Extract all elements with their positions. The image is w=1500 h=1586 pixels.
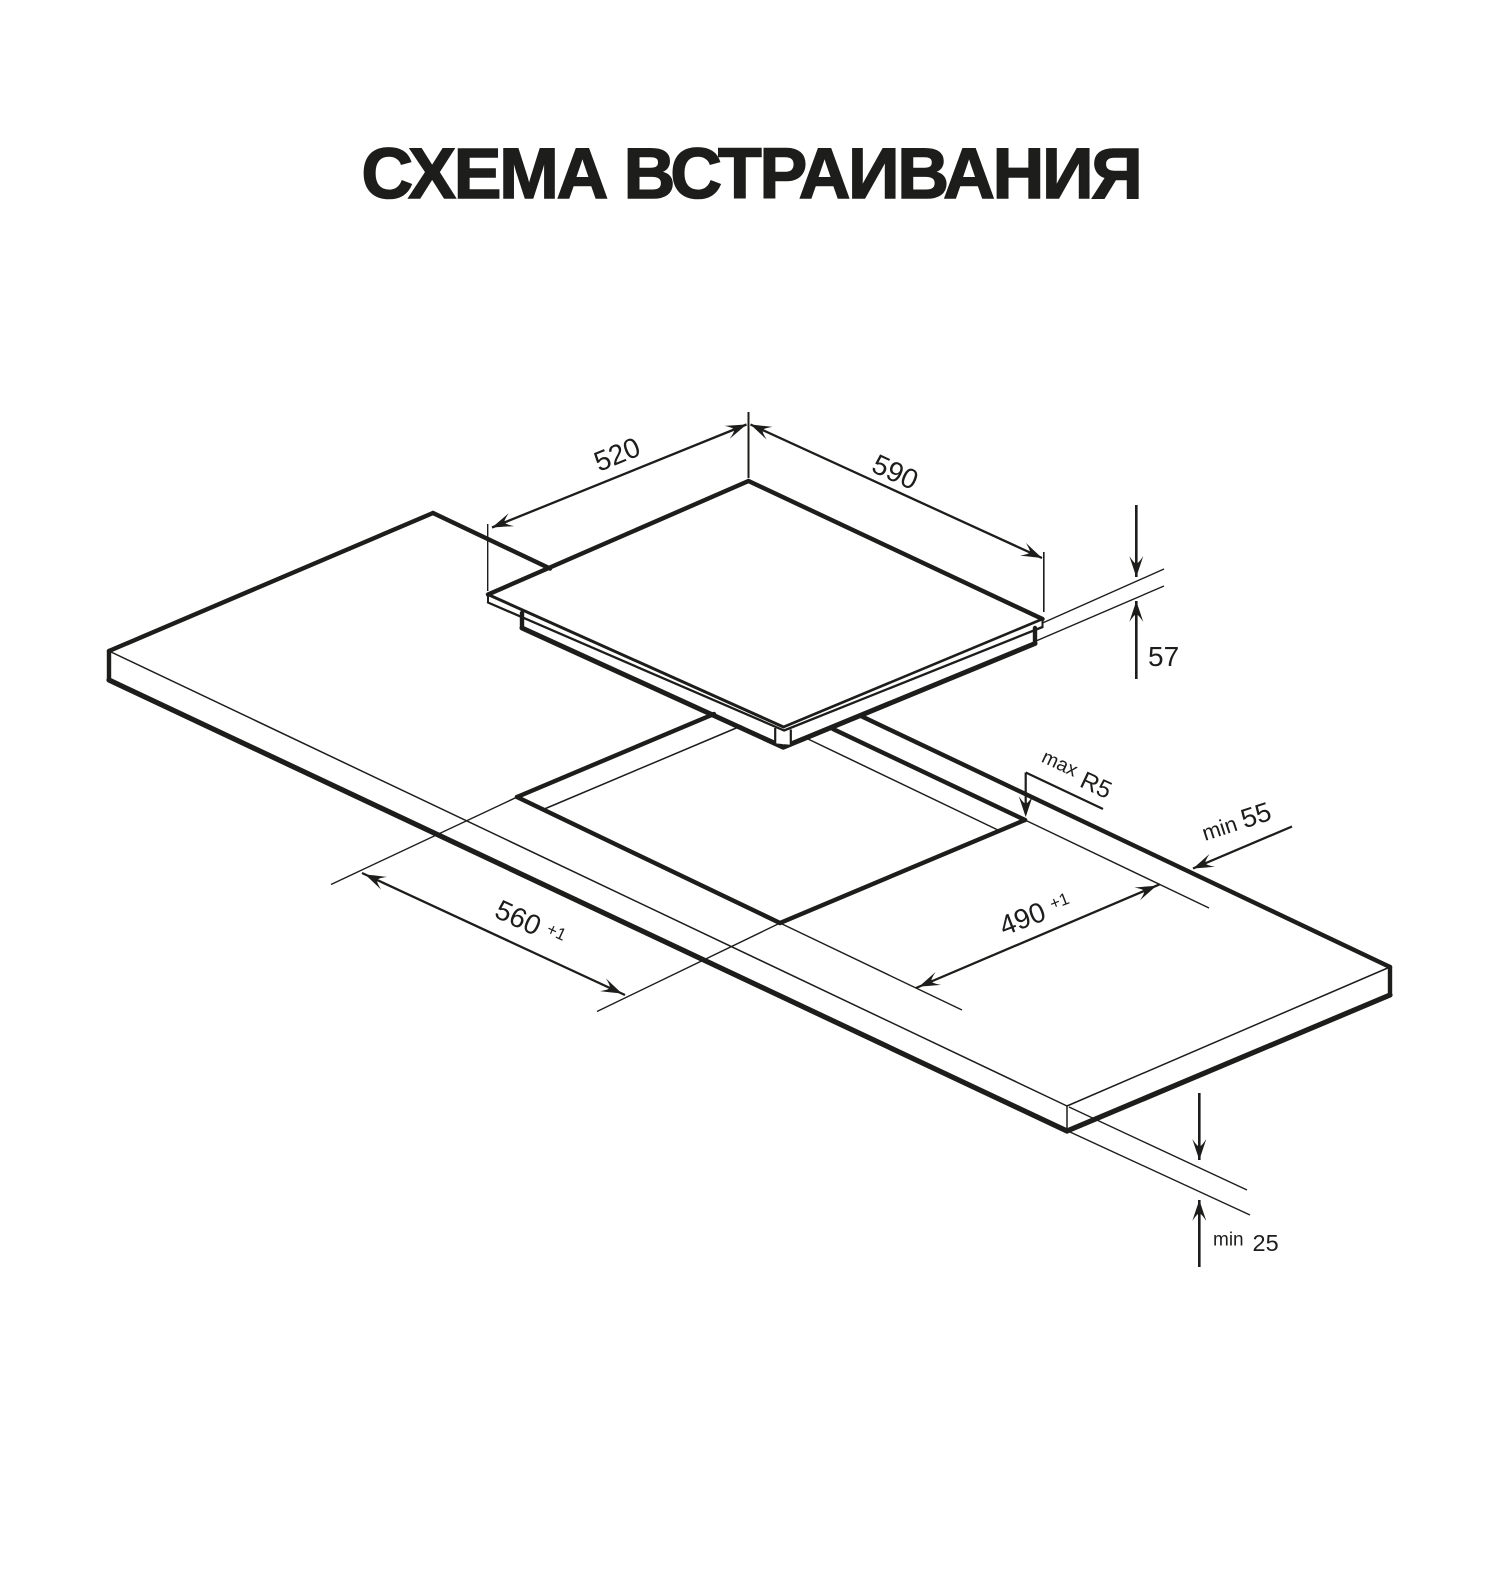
svg-text:max: max [1038, 746, 1081, 782]
svg-text:СХЕМА ВСТРАИВАНИЯ: СХЕМА ВСТРАИВАНИЯ [362, 134, 1141, 214]
svg-text:25: 25 [1253, 1230, 1279, 1256]
svg-text:57: 57 [1148, 641, 1179, 672]
svg-text:520: 520 [590, 431, 645, 477]
svg-text:55: 55 [1237, 796, 1275, 834]
svg-text:590: 590 [868, 448, 923, 496]
svg-text:490 +1: 490 +1 [995, 886, 1075, 941]
svg-text:min: min [1199, 811, 1240, 846]
svg-text:min: min [1213, 1230, 1244, 1251]
svg-text:560 +1: 560 +1 [490, 894, 570, 953]
